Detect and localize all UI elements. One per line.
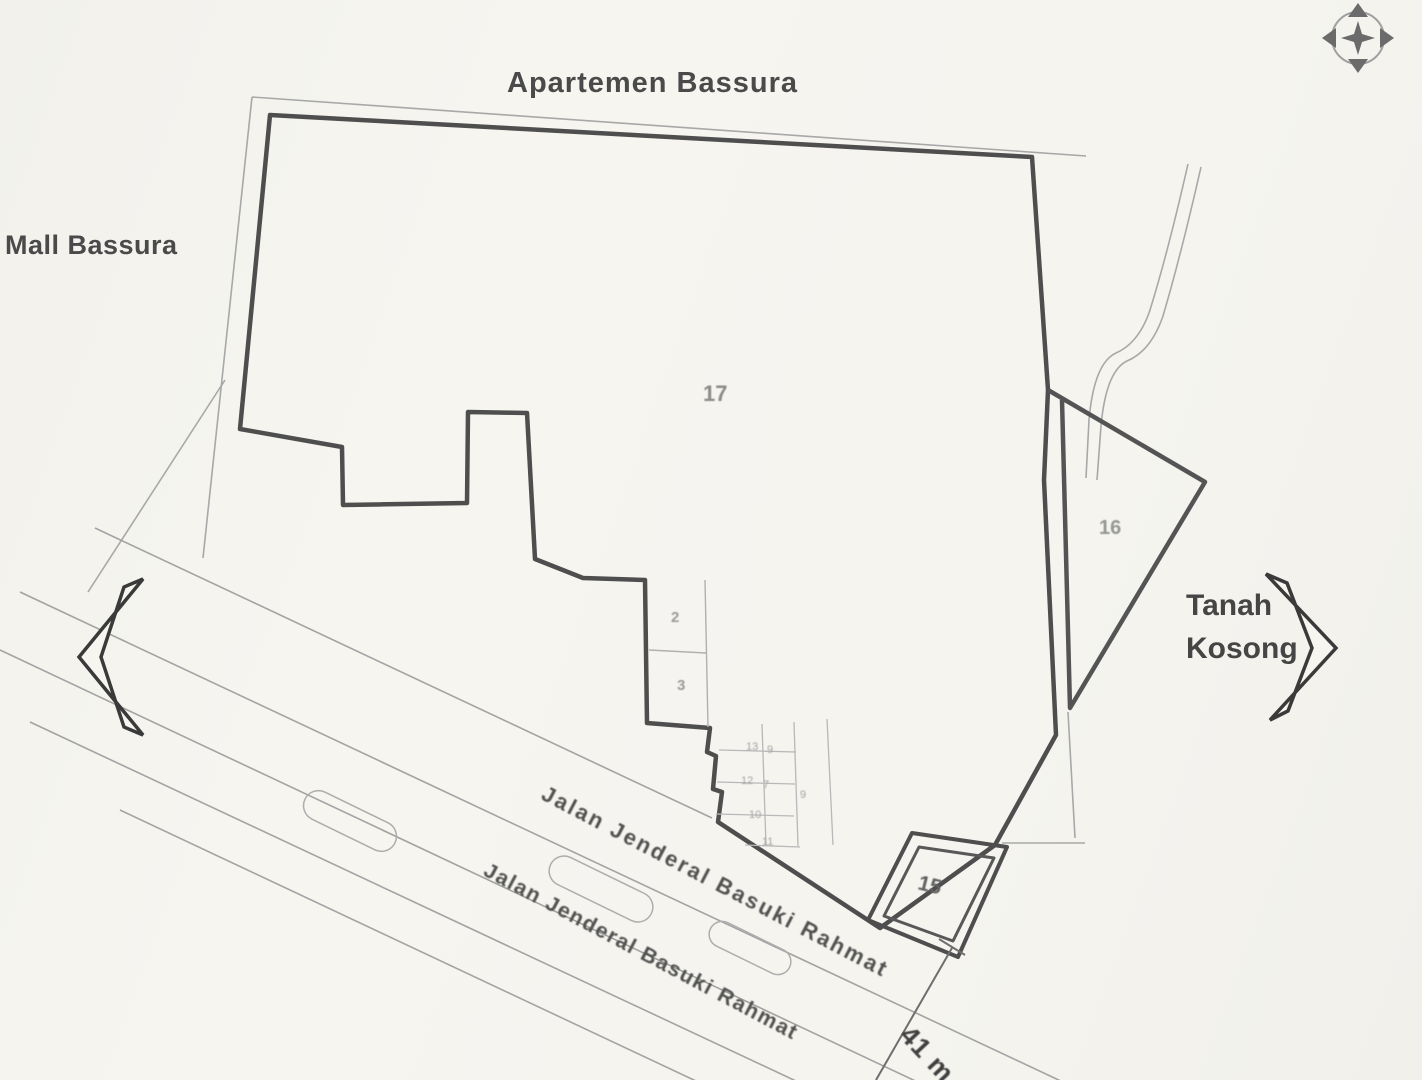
label-mall-bassura: Mall Bassura: [5, 230, 178, 261]
site-plan-viewer: Apartemen Bassura Mall Bassura Tanah Kos…: [0, 0, 1422, 1080]
parcel-number-16: 16: [1099, 517, 1121, 540]
prev-image-button[interactable]: [70, 570, 150, 750]
label-apartemen-bassura: Apartemen Bassura: [507, 67, 798, 100]
parcel-number-17: 17: [703, 381, 727, 407]
parcel-number-2: 2: [671, 609, 679, 626]
site-plan-drawing: [0, 0, 1422, 1080]
outer-road-edge-lines: [88, 97, 1086, 592]
grid-parcel-number: 9: [767, 744, 773, 756]
chevron-left-icon: [70, 570, 150, 750]
next-image-button[interactable]: [1256, 566, 1344, 731]
parcel-16-boundary: [1048, 390, 1205, 708]
parcel-2-3-lines: [649, 580, 708, 727]
grid-parcel-number: 9: [800, 789, 806, 801]
channel-lines: [1002, 164, 1201, 843]
parcel-grid-lines: [716, 719, 833, 847]
grid-parcel-number: 7: [763, 779, 769, 791]
grid-parcel-number: 13: [746, 741, 758, 753]
chevron-right-icon: [1256, 566, 1344, 731]
grid-parcel-number: 11: [762, 836, 773, 848]
pan-control[interactable]: [1314, 0, 1406, 80]
parcel-number-3: 3: [677, 677, 685, 694]
parcel-17-boundary: [240, 115, 1056, 928]
grid-parcel-number: 10: [749, 809, 761, 821]
grid-parcel-number: 12: [741, 775, 753, 787]
pan-arrows-icon: [1314, 0, 1406, 80]
